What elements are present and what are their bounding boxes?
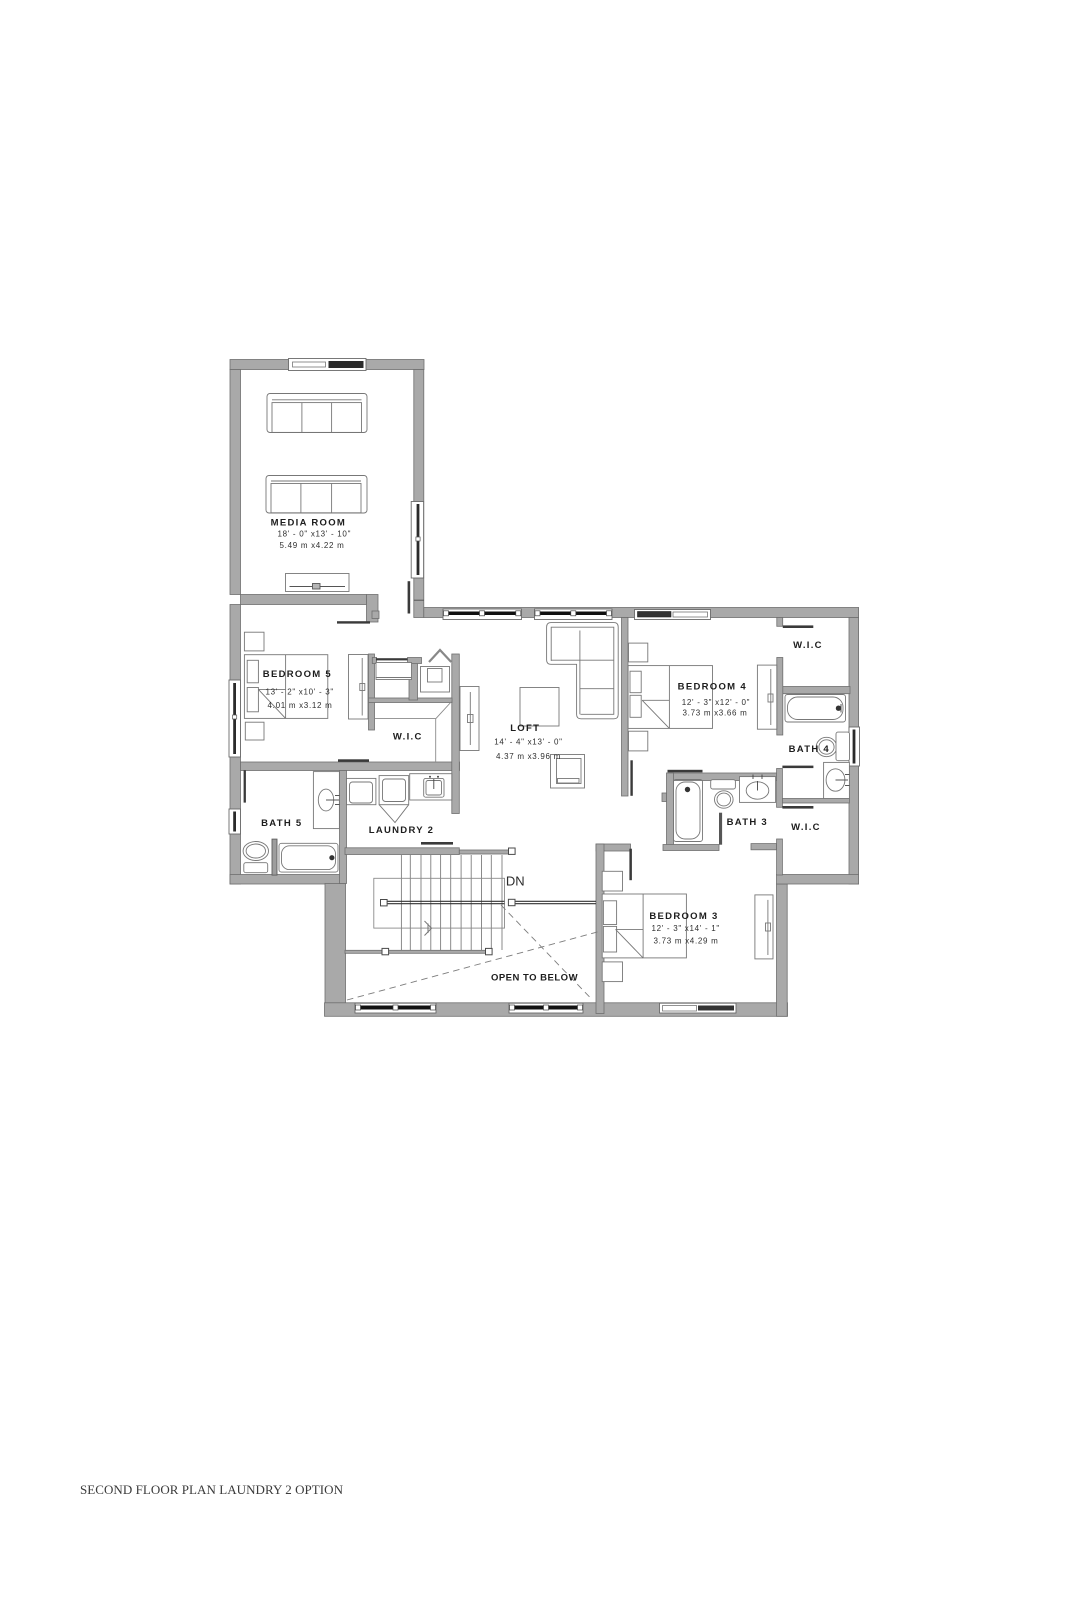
svg-text:MEDIA ROOM: MEDIA ROOM — [271, 518, 346, 529]
svg-text:LOFT: LOFT — [510, 723, 540, 734]
svg-text:BATH 5: BATH 5 — [261, 818, 302, 829]
svg-text:14' - 4" x13' - 0": 14' - 4" x13' - 0" — [494, 737, 562, 746]
svg-text:W.I.C: W.I.C — [793, 640, 823, 651]
svg-text:4.01 m x3.12 m: 4.01 m x3.12 m — [268, 701, 333, 710]
svg-text:12' - 3" x12' - 0": 12' - 3" x12' - 0" — [682, 698, 750, 707]
svg-text:W.I.C: W.I.C — [393, 732, 423, 743]
svg-text:5.49 m x4.22 m: 5.49 m x4.22 m — [280, 541, 345, 550]
svg-text:LAUNDRY 2: LAUNDRY 2 — [369, 825, 435, 836]
svg-text:12' - 3" x14' - 1": 12' - 3" x14' - 1" — [651, 924, 719, 933]
svg-text:BATH 4: BATH 4 — [789, 744, 830, 755]
svg-text:18' - 0" x13' - 10": 18' - 0" x13' - 10" — [277, 530, 351, 539]
svg-text:BATH 3: BATH 3 — [727, 817, 768, 828]
svg-text:DN: DN — [506, 874, 525, 889]
svg-text:3.73 m x4.29 m: 3.73 m x4.29 m — [654, 937, 719, 946]
svg-text:3.73 m x3.66 m: 3.73 m x3.66 m — [683, 709, 748, 718]
svg-text:4.37 m x3.96 m: 4.37 m x3.96 m — [496, 752, 561, 761]
svg-text:OPEN TO BELOW: OPEN TO BELOW — [491, 973, 578, 984]
svg-text:SECOND FLOOR PLAN LAUNDRY 2 OP: SECOND FLOOR PLAN LAUNDRY 2 OPTION — [80, 1482, 344, 1497]
svg-text:13' - 2" x10' - 3": 13' - 2" x10' - 3" — [265, 688, 333, 697]
svg-text:W.I.C: W.I.C — [791, 822, 821, 833]
svg-text:BEDROOM 3: BEDROOM 3 — [649, 911, 718, 922]
svg-text:BEDROOM 5: BEDROOM 5 — [263, 669, 332, 680]
svg-text:BEDROOM 4: BEDROOM 4 — [678, 682, 747, 693]
